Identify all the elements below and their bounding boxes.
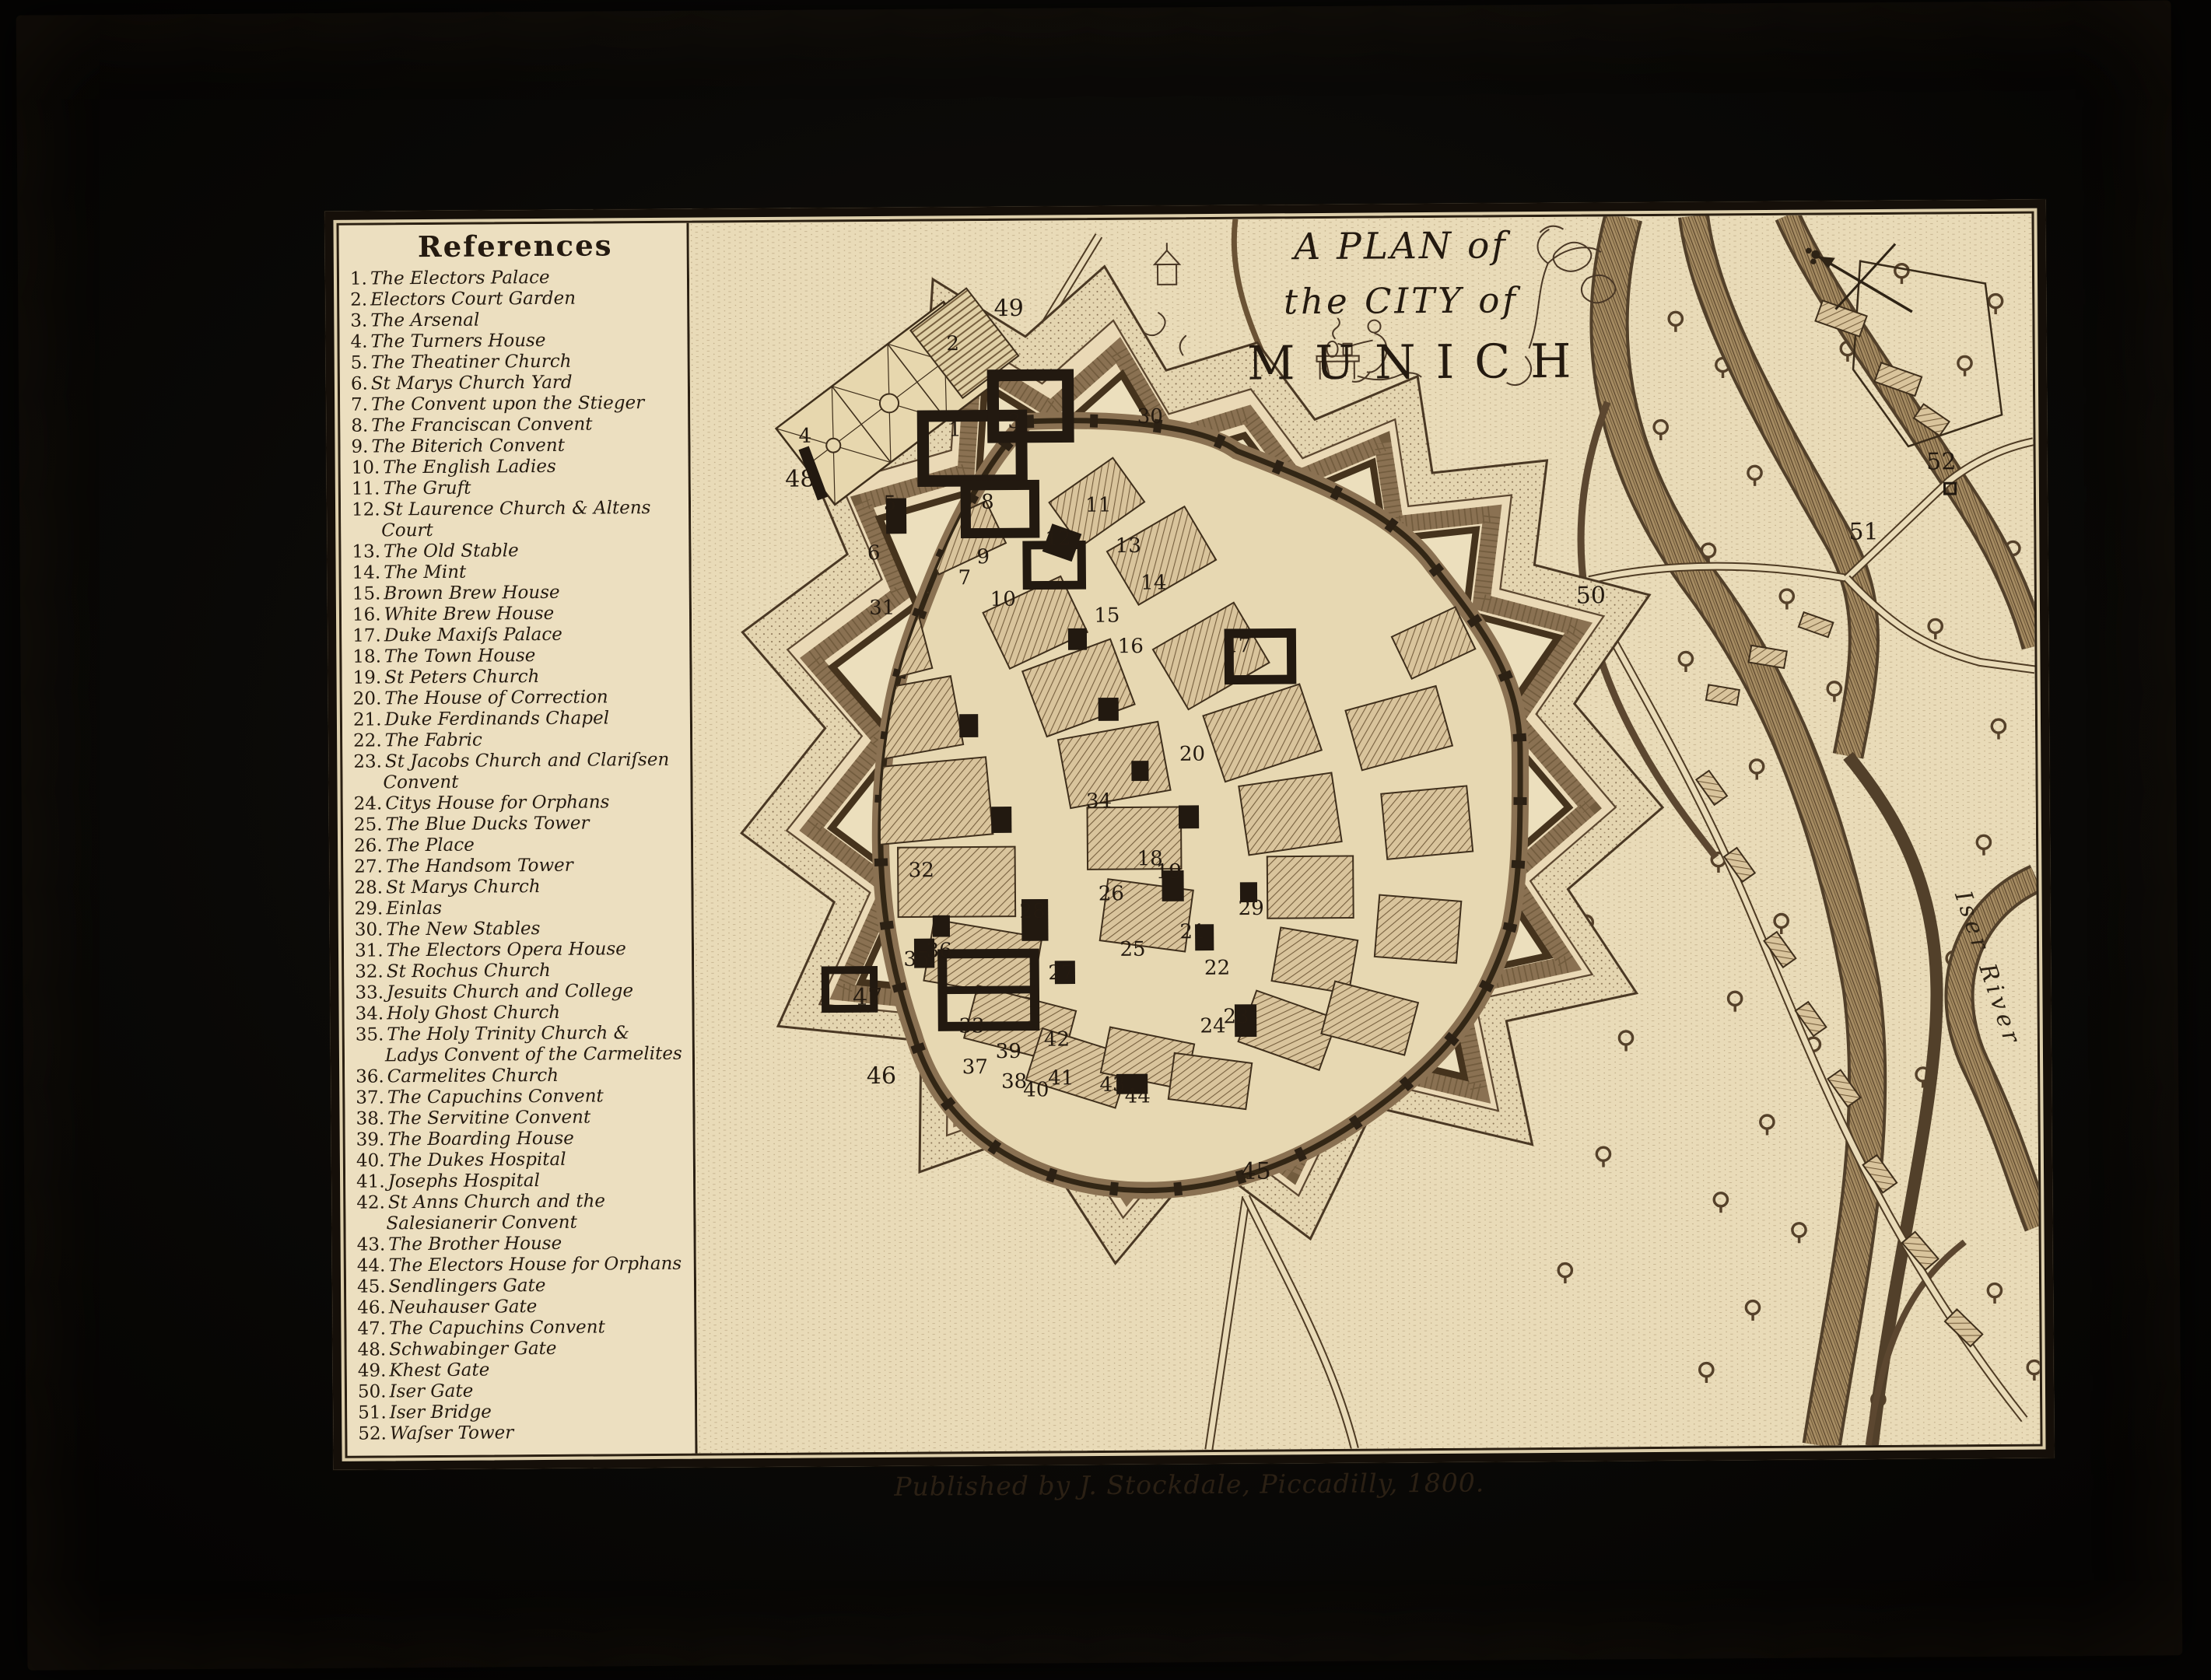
- reference-label: The New Stables: [386, 919, 540, 940]
- reference-number: 7.: [351, 395, 368, 415]
- reference-number: 17.: [352, 625, 381, 646]
- reference-number: 39.: [356, 1129, 385, 1150]
- reference-label: The Blue Ducks Tower: [385, 814, 589, 835]
- reference-number: 36.: [356, 1066, 384, 1087]
- reference-label: The Turners House: [370, 331, 545, 352]
- reference-number: 35.: [356, 1024, 384, 1045]
- map-marker-31: 31: [869, 597, 895, 620]
- reference-label: St Anns Church and the Salesianerir Conv…: [386, 1191, 605, 1234]
- map-marker-39: 39: [996, 1040, 1021, 1063]
- reference-item: 52.Waſser Tower: [358, 1422, 689, 1445]
- reference-label: The Capuchins Convent: [387, 1086, 604, 1108]
- reference-number: 22.: [353, 730, 382, 751]
- reference-item: 35.The Holy Trinity Church & Ladys Conve…: [356, 1023, 686, 1067]
- map-marker-48: 48: [785, 466, 815, 493]
- reference-label: The Franciscan Convent: [371, 415, 592, 436]
- reference-number: 20.: [353, 688, 382, 709]
- map-marker-3: 3: [1007, 410, 1021, 433]
- reference-item: 4.The Turners House: [350, 330, 681, 353]
- reference-item: 22.The Fabric: [353, 729, 684, 752]
- reference-item: 2.Electors Court Garden: [350, 288, 681, 311]
- reference-number: 43.: [357, 1234, 386, 1255]
- reference-number: 24.: [354, 793, 383, 814]
- reference-label: The Fabric: [385, 730, 482, 751]
- reference-number: 40.: [356, 1150, 385, 1171]
- reference-item: 18.The Town House: [352, 645, 683, 668]
- references-list: 1.The Electors Palace2.Electors Court Ga…: [350, 267, 689, 1445]
- reference-label: Citys House for Orphans: [385, 792, 609, 814]
- reference-item: 40.The Dukes Hospital: [356, 1149, 687, 1172]
- reference-label: Jesuits Church and College: [387, 981, 633, 1003]
- reference-item: 26.The Place: [354, 834, 685, 857]
- reference-item: 13.The Old Stable: [352, 540, 682, 563]
- reference-number: 14.: [352, 562, 381, 583]
- reference-item: 38.The Servitine Convent: [356, 1107, 686, 1130]
- reference-number: 31.: [355, 940, 384, 961]
- map-marker-34: 34: [1086, 789, 1112, 813]
- reference-number: 41.: [356, 1171, 385, 1192]
- map-marker-45: 45: [1241, 1158, 1271, 1185]
- reference-item: 29.Einlas: [355, 897, 685, 920]
- reference-item: 27.The Handsom Tower: [354, 855, 685, 878]
- reference-number: 42.: [356, 1192, 385, 1213]
- reference-item: 30.The New Stables: [355, 918, 685, 941]
- reference-item: 20.The House of Correction: [353, 687, 684, 710]
- reference-item: 17.Duke Maxiſs Palace: [352, 624, 683, 647]
- reference-number: 38.: [356, 1108, 384, 1129]
- map-marker-52: 52: [1926, 448, 1957, 475]
- reference-label: The Theatiner Church: [371, 352, 572, 373]
- reference-number: 50.: [358, 1381, 387, 1402]
- reference-number: 32.: [355, 961, 384, 982]
- reference-label: The Biterich Convent: [371, 436, 565, 457]
- map-marker-11: 11: [1085, 494, 1111, 517]
- city-plan-engraving: Iser River 12345678910111213141516171819…: [689, 214, 2040, 1454]
- reference-item: 39.The Boarding House: [356, 1128, 687, 1151]
- reference-label: Duke Maxiſs Palace: [384, 625, 562, 646]
- reference-number: 30.: [355, 919, 384, 940]
- reference-label: St Marys Church Yard: [371, 373, 573, 394]
- reference-item: 14.The Mint: [352, 561, 683, 584]
- reference-number: 51.: [358, 1402, 387, 1423]
- map-marker-26: 26: [1098, 882, 1124, 905]
- reference-label: Schwabinger Gate: [389, 1339, 557, 1360]
- reference-label: The Arsenal: [370, 310, 479, 331]
- reference-label: Khest Gate: [389, 1360, 489, 1381]
- reference-item: 32.St Rochus Church: [355, 960, 685, 983]
- reference-label: Einlas: [386, 898, 442, 919]
- reference-item: 6.St Marys Church Yard: [351, 372, 682, 395]
- reference-label: The Old Stable: [384, 541, 519, 562]
- map-marker-13: 13: [1116, 534, 1141, 558]
- map-marker-29: 29: [1238, 897, 1263, 920]
- map-marker-40: 40: [1023, 1078, 1049, 1101]
- reference-label: The Boarding House: [387, 1129, 574, 1150]
- reference-item: 49.Khest Gate: [358, 1359, 689, 1382]
- reference-number: 1.: [350, 269, 367, 289]
- reference-item: 19.St Peters Church: [352, 666, 683, 689]
- reference-item: 47.The Capuchins Convent: [357, 1317, 688, 1340]
- map-marker-44: 44: [1125, 1084, 1151, 1108]
- map-marker-22: 22: [1204, 957, 1230, 980]
- reference-label: Waſser Tower: [390, 1423, 513, 1444]
- reference-label: The Brother House: [388, 1234, 562, 1255]
- reference-label: Electors Court Garden: [370, 289, 576, 310]
- map-marker-7: 7: [958, 566, 972, 590]
- reference-label: Carmelites Church: [387, 1066, 559, 1087]
- reference-label: Iser Gate: [389, 1381, 473, 1402]
- reference-label: Iser Bridge: [390, 1402, 492, 1423]
- reference-number: 18.: [352, 646, 381, 667]
- reference-number: 29.: [355, 898, 384, 919]
- reference-item: 36.Carmelites Church: [356, 1065, 686, 1088]
- reference-item: 10.The English Ladies: [352, 456, 682, 479]
- plate-neatline: References 1.The Electors Palace2.Electo…: [336, 212, 2042, 1458]
- reference-item: 21.Duke Ferdinands Chapel: [353, 708, 684, 731]
- reference-number: 3.: [350, 311, 367, 331]
- reference-number: 9.: [351, 437, 368, 457]
- reference-number: 27.: [354, 856, 383, 877]
- reference-item: 1.The Electors Palace: [350, 267, 681, 290]
- reference-label: The Convent upon the Stieger: [371, 393, 644, 415]
- map-marker-6: 6: [867, 541, 881, 565]
- map-marker-41: 41: [1048, 1066, 1074, 1090]
- map-marker-8: 8: [981, 491, 994, 514]
- map-marker-19: 19: [1156, 860, 1182, 884]
- screenshot-root: { "scene": { "background_color": "#09080…: [0, 0, 2211, 1680]
- map-marker-51: 51: [1848, 518, 1879, 545]
- references-title: References: [350, 228, 681, 264]
- reference-number: 46.: [357, 1297, 386, 1318]
- reference-item: 15.Brown Brew House: [352, 582, 683, 605]
- reference-number: 37.: [356, 1087, 384, 1108]
- reference-number: 12.: [352, 499, 380, 520]
- reference-label: St Laurence Church & Altens Court: [381, 498, 650, 541]
- reference-label: The Gruft: [383, 478, 471, 499]
- reference-item: 12.St Laurence Church & Altens Court: [352, 498, 682, 542]
- reference-label: The Servitine Convent: [387, 1108, 590, 1129]
- map-marker-5: 5: [884, 492, 897, 516]
- map-marker-15: 15: [1094, 604, 1120, 628]
- reference-number: 10.: [352, 457, 380, 478]
- reference-item: 46.Neuhauser Gate: [357, 1296, 688, 1319]
- map-marker-17: 17: [1225, 634, 1251, 657]
- reference-number: 44.: [357, 1255, 386, 1276]
- reference-number: 28.: [354, 877, 383, 898]
- reference-label: St Jacobs Church and Clariſsen Convent: [383, 750, 669, 793]
- reference-item: 48.Schwabinger Gate: [358, 1338, 689, 1361]
- reference-label: Duke Ferdinands Chapel: [384, 708, 609, 730]
- reference-item: 24.Citys House for Orphans: [354, 792, 685, 815]
- map-marker-16: 16: [1118, 635, 1144, 658]
- reference-item: 16.White Brew House: [352, 603, 683, 626]
- map-marker-1: 1: [948, 418, 962, 442]
- map-marker-10: 10: [990, 588, 1016, 611]
- reference-label: The Electors House for Orphans: [388, 1254, 682, 1276]
- reference-item: 41.Josephs Hospital: [356, 1170, 687, 1193]
- reference-number: 6.: [351, 374, 368, 394]
- reference-label: Brown Brew House: [384, 583, 559, 604]
- reference-label: Holy Ghost Church: [387, 1003, 560, 1024]
- reference-item: 50.Iser Gate: [358, 1380, 689, 1403]
- reference-number: 23.: [353, 751, 382, 772]
- reference-label: The Holy Trinity Church & Ladys Convent …: [385, 1023, 682, 1066]
- reference-number: 16.: [352, 604, 381, 625]
- reference-item: 5.The Theatiner Church: [351, 351, 682, 374]
- reference-label: Josephs Hospital: [388, 1171, 540, 1192]
- reference-item: 9.The Biterich Convent: [351, 435, 682, 458]
- reference-number: 52.: [358, 1423, 387, 1444]
- map-marker-12: 12: [1045, 527, 1070, 551]
- map-marker-27: 27: [1048, 961, 1074, 985]
- reference-label: The English Ladies: [383, 457, 556, 478]
- map-marker-4: 4: [799, 425, 812, 448]
- reference-number: 21.: [353, 709, 382, 730]
- reference-label: St Rochus Church: [387, 961, 551, 982]
- reference-item: 11.The Gruft: [352, 477, 682, 500]
- map-marker-25: 25: [1120, 938, 1145, 961]
- map-marker-9: 9: [976, 545, 990, 569]
- map-marker-50: 50: [1576, 582, 1607, 609]
- reference-item: 45.Sendlingers Gate: [357, 1275, 688, 1298]
- map-marker-28: 28: [1019, 900, 1045, 923]
- reference-number: 2.: [350, 290, 367, 310]
- reference-number: 45.: [357, 1276, 386, 1297]
- map-marker-21: 21: [1179, 920, 1205, 943]
- reference-item: 51.Iser Bridge: [358, 1401, 689, 1424]
- map-marker-20: 20: [1179, 743, 1205, 766]
- reference-item: 31.The Electors Opera House: [355, 939, 685, 962]
- reference-number: 8.: [351, 416, 368, 436]
- reference-number: 49.: [358, 1360, 387, 1381]
- reference-label: The Electors Palace: [370, 268, 550, 289]
- reference-item: 3.The Arsenal: [350, 309, 681, 332]
- map-sheet-paper: References 1.The Electors Palace2.Electo…: [16, 0, 2183, 1670]
- reference-number: 48.: [358, 1339, 387, 1360]
- reference-number: 15.: [352, 583, 381, 604]
- reference-number: 26.: [354, 835, 383, 856]
- reference-number: 47.: [357, 1318, 386, 1339]
- map-marker-14: 14: [1141, 571, 1166, 594]
- publisher-imprint: Published by J. Stockdale, Piccadilly, 1…: [338, 1464, 2041, 1506]
- reference-label: The Dukes Hospital: [387, 1150, 566, 1171]
- map-marker-36: 36: [926, 939, 951, 962]
- reference-label: The House of Correction: [384, 687, 608, 709]
- reference-item: 28.St Marys Church: [354, 876, 685, 899]
- reference-label: Sendlingers Gate: [389, 1276, 546, 1297]
- map-marker-23: 23: [1223, 1005, 1249, 1028]
- reference-number: 4.: [350, 332, 367, 352]
- reference-label: The Handsom Tower: [386, 856, 573, 877]
- reference-label: The Electors Opera House: [387, 939, 626, 961]
- reference-item: 44.The Electors House for Orphans: [357, 1254, 688, 1277]
- reference-number: 25.: [354, 814, 383, 835]
- references-panel: References 1.The Electors Palace2.Electo…: [339, 223, 698, 1456]
- reference-label: The Town House: [384, 646, 536, 667]
- map-area: Iser River 12345678910111213141516171819…: [689, 214, 2040, 1454]
- reference-item: 8.The Franciscan Convent: [351, 414, 682, 437]
- reference-item: 33.Jesuits Church and College: [355, 981, 685, 1004]
- reference-label: St Marys Church: [386, 877, 541, 898]
- reference-label: The Capuchins Convent: [389, 1317, 605, 1339]
- reference-label: The Place: [386, 835, 475, 856]
- reference-item: 42.St Anns Church and the Salesianerir C…: [356, 1191, 687, 1235]
- map-marker-43: 43: [1099, 1073, 1125, 1097]
- reference-number: 19.: [352, 667, 381, 688]
- reference-item: 25.The Blue Ducks Tower: [354, 813, 685, 836]
- reference-label: The Mint: [384, 562, 466, 583]
- reference-label: Neuhauser Gate: [389, 1297, 538, 1318]
- reference-item: 7.The Convent upon the Stieger: [351, 393, 682, 416]
- engraved-plate: References 1.The Electors Palace2.Electo…: [324, 199, 2054, 1469]
- reference-label: White Brew House: [384, 604, 554, 625]
- map-marker-32: 32: [909, 859, 934, 882]
- reference-item: 34.Holy Ghost Church: [355, 1002, 685, 1025]
- map-marker-2: 2: [946, 332, 959, 355]
- map-marker-49: 49: [993, 295, 1024, 322]
- map-marker-24: 24: [1200, 1014, 1225, 1038]
- map-marker-30: 30: [1137, 405, 1163, 429]
- map-marker-42: 42: [1044, 1028, 1070, 1052]
- reference-number: 11.: [352, 478, 380, 499]
- map-marker-46: 46: [867, 1062, 897, 1090]
- map-marker-47: 47: [853, 984, 883, 1011]
- reference-number: 5.: [351, 353, 368, 373]
- reference-item: 43.The Brother House: [357, 1233, 688, 1256]
- map-marker-37: 37: [962, 1055, 988, 1079]
- reference-item: 37.The Capuchins Convent: [356, 1086, 686, 1109]
- map-marker-33: 33: [958, 1015, 984, 1038]
- reference-item: 23.St Jacobs Church and Clariſsen Conven…: [353, 750, 684, 794]
- reference-label: St Peters Church: [384, 667, 539, 688]
- reference-number: 13.: [352, 541, 380, 562]
- reference-number: 34.: [355, 1003, 384, 1024]
- reference-number: 33.: [355, 982, 384, 1003]
